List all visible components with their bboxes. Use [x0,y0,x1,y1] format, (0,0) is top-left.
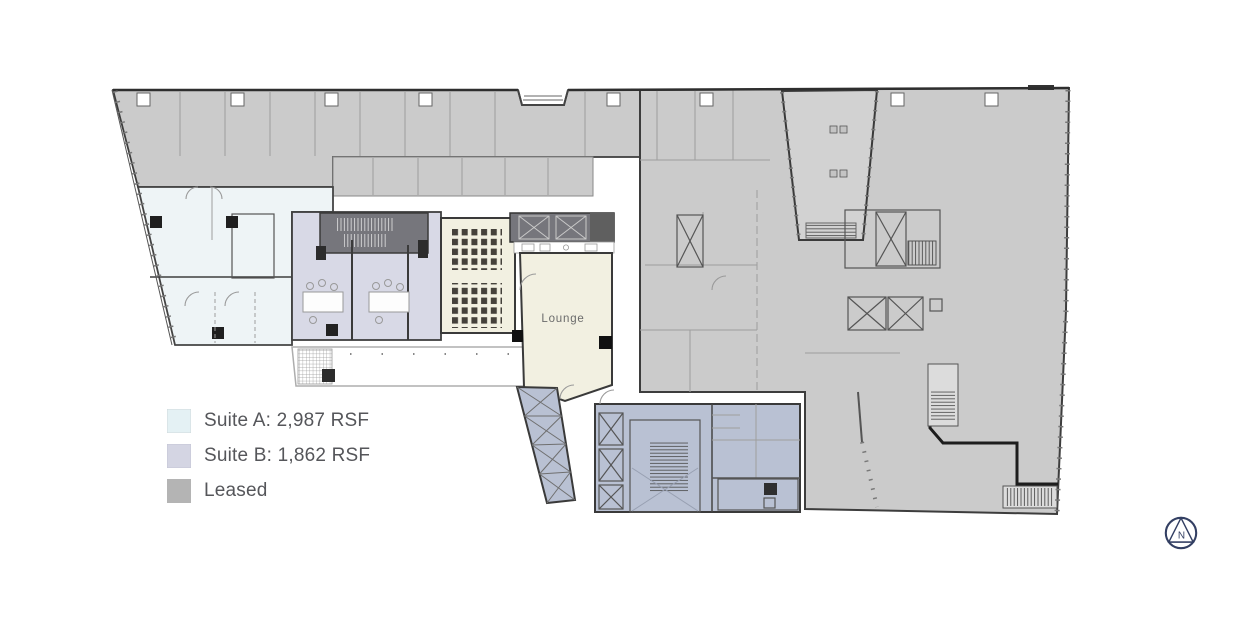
seating-grid [452,229,502,270]
legend-item-suite-b: Suite B: 1,862 RSF [167,444,370,468]
lounge-region: Lounge [512,253,612,401]
elevator-bank-top [510,213,614,253]
legend-item-leased: Leased [167,479,370,503]
compass-label: N [1178,531,1185,542]
legend-swatch-suite-b [167,444,191,468]
legend-label-suite-a: Suite A: 2,987 RSF [204,409,369,433]
legend: Suite A: 2,987 RSF Suite B: 1,862 RSF Le… [167,409,370,503]
stair-icon [344,234,386,247]
stair-icon [931,390,955,422]
core-region [517,387,800,512]
legend-swatch-leased [167,479,191,503]
lounge-label: Lounge [541,313,584,325]
atrium-region [782,90,877,240]
legend-item-suite-a: Suite A: 2,987 RSF [167,409,370,433]
seating-grid [452,283,502,328]
legend-label-suite-b: Suite B: 1,862 RSF [204,444,370,468]
stair-icon [650,442,688,492]
floor-plan-page: Lounge [0,0,1260,620]
north-arrow-icon: N [1162,514,1200,552]
terrace-region [292,347,538,386]
floor-plan-svg: Lounge [0,0,1260,620]
stair-icon [336,218,394,231]
stair-icon [908,241,936,265]
suite-b-region [292,212,441,340]
stair-icon [1006,488,1054,506]
legend-label-leased: Leased [204,479,268,503]
training-room-region [441,218,515,333]
legend-swatch-suite-a [167,409,191,433]
leased-rooms-row [333,157,593,196]
